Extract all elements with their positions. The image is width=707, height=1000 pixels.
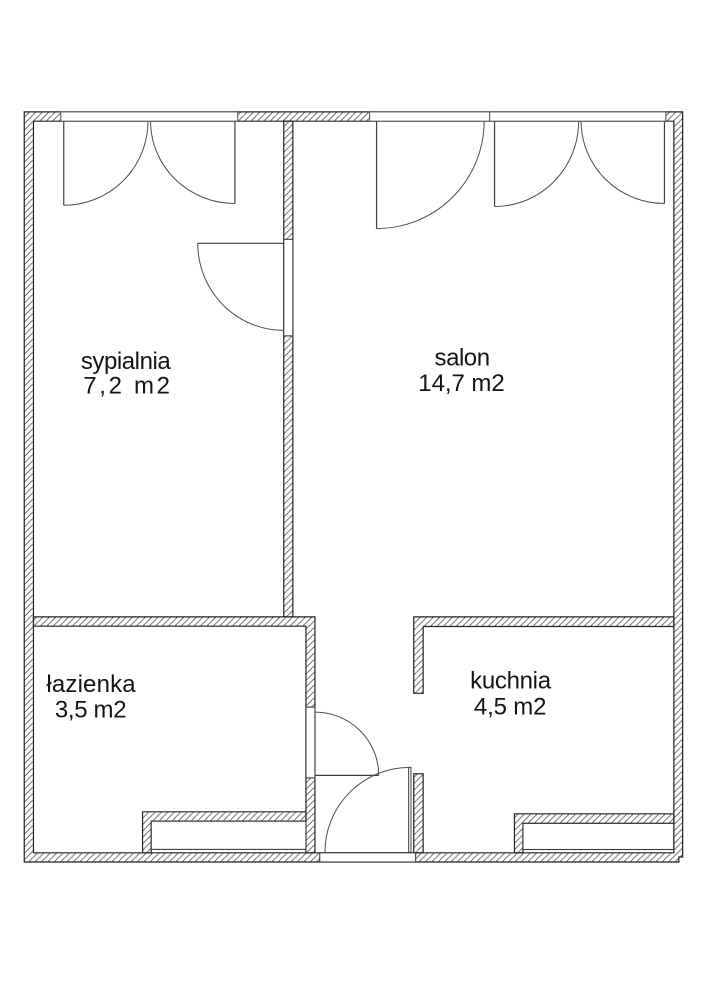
svg-text:7,2 m2: 7,2 m2 (83, 372, 170, 399)
svg-text:sypialnia: sypialnia (81, 348, 172, 375)
svg-text:4,5 m2: 4,5 m2 (474, 693, 547, 720)
svg-text:salon: salon (435, 345, 491, 372)
svg-text:3,5 m2: 3,5 m2 (55, 697, 127, 724)
svg-text:14,7 m2: 14,7 m2 (418, 370, 504, 397)
svg-text:łazienka: łazienka (46, 671, 136, 698)
svg-text:kuchnia: kuchnia (470, 668, 552, 695)
